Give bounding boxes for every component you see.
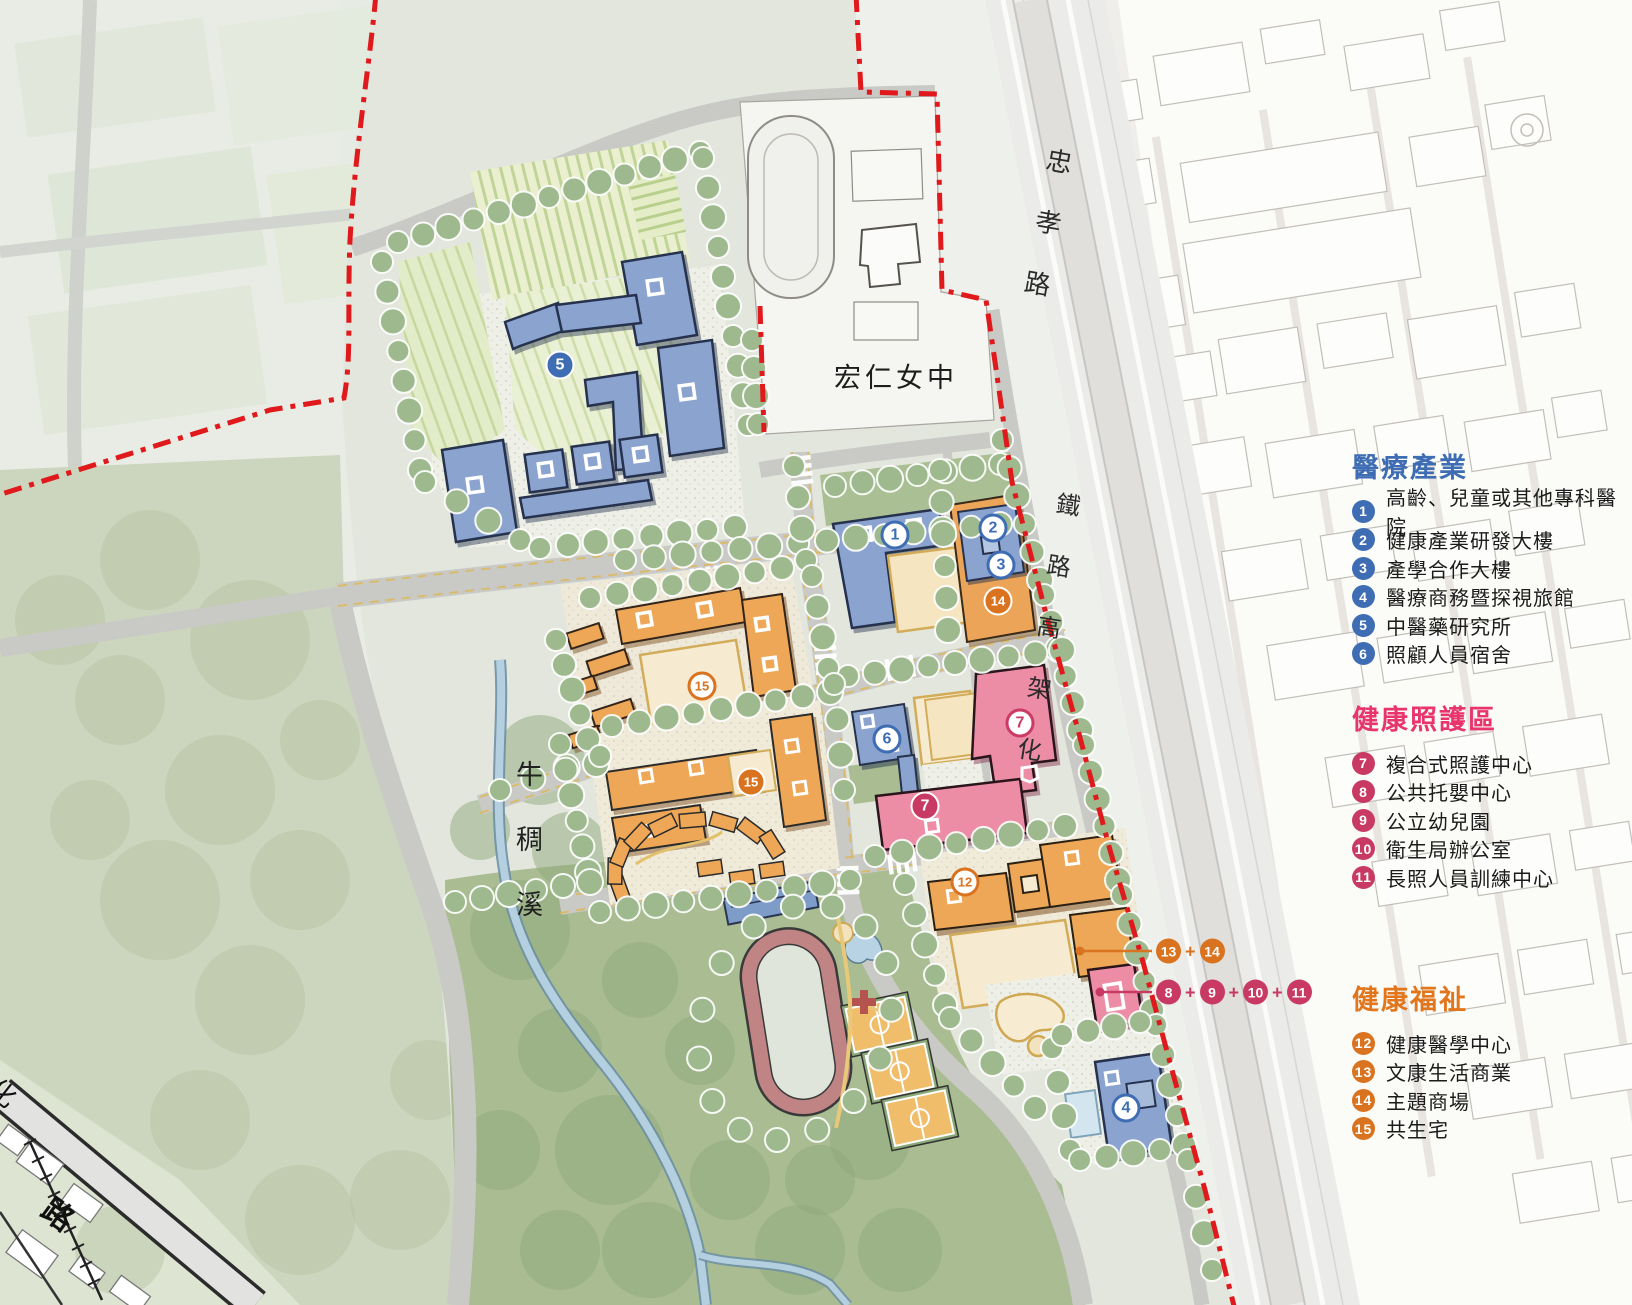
- map-badge-2: 2: [979, 514, 1008, 543]
- map-badge-7: 7: [911, 792, 940, 821]
- legend-health-welfare: 健康福祉 12健康醫學中心13文康生活商業14主題商場15共生宅: [1352, 978, 1512, 1143]
- callout-plus: +: [1229, 983, 1240, 1001]
- stream-label: 牛稠溪: [508, 760, 547, 955]
- legend-item: 6照顧人員宿舍: [1352, 640, 1632, 669]
- callout-plus: +: [1185, 942, 1196, 960]
- school-label: 宏仁女中: [834, 356, 958, 395]
- legend-item-number: 10: [1352, 837, 1375, 860]
- callout-number-14: 14: [1200, 939, 1225, 964]
- legend-item-number: 4: [1352, 585, 1375, 608]
- callout-13-14: 13+14: [1156, 939, 1225, 964]
- legend-medical-list: 1高齡、兒童或其他專科醫院2健康產業研發大樓3產學合作大樓4醫療商務暨探視旅館5…: [1352, 497, 1632, 668]
- legend-item-label: 中醫藥研究所: [1386, 611, 1512, 640]
- legend-item: 8公共托嬰中心: [1352, 778, 1554, 807]
- master-plan-page: 宏仁女中 忠孝路 鐵路高架化 牛稠溪 路 化 醫療產業 1高齡、兒童或其他專科醫…: [0, 0, 1632, 1305]
- legend-item-label: 複合式照護中心: [1386, 749, 1533, 778]
- callout-plus: +: [1185, 983, 1196, 1001]
- callout-plus: +: [1272, 983, 1283, 1001]
- legend-item-number: 11: [1352, 866, 1375, 889]
- legend-item: 3產學合作大樓: [1352, 554, 1632, 583]
- callout-number-8: 8: [1156, 980, 1181, 1005]
- legend-item-number: 12: [1352, 1032, 1375, 1055]
- map-badge-14: 14: [984, 587, 1013, 616]
- legend-item-number: 15: [1352, 1117, 1375, 1140]
- callout-number-11: 11: [1287, 980, 1312, 1005]
- legend-item-label: 文康生活商業: [1386, 1057, 1512, 1086]
- map-badge-3: 3: [987, 551, 1016, 580]
- legend-item: 9公立幼兒園: [1352, 806, 1554, 835]
- legend-medical-industry: 醫療產業 1高齡、兒童或其他專科醫院2健康產業研發大樓3產學合作大樓4醫療商務暨…: [1352, 446, 1632, 668]
- legend-item-label: 衛生局辦公室: [1386, 834, 1512, 863]
- map-badge-15: 15: [737, 768, 766, 797]
- legend-item-number: 8: [1352, 780, 1375, 803]
- legend-medical-title: 醫療產業: [1352, 446, 1632, 485]
- legend-welfare-list: 12健康醫學中心13文康生活商業14主題商場15共生宅: [1352, 1029, 1512, 1143]
- legend-item-number: 6: [1352, 642, 1375, 665]
- callout-number-13: 13: [1156, 939, 1181, 964]
- map-badge-7: 7: [1006, 709, 1035, 738]
- legend-item: 11長照人員訓練中心: [1352, 863, 1554, 892]
- legend-item: 5中醫藥研究所: [1352, 611, 1632, 640]
- legend-item-number: 14: [1352, 1089, 1375, 1112]
- legend-item-number: 9: [1352, 809, 1375, 832]
- legend-health-care: 健康照護區 7複合式照護中心8公共托嬰中心9公立幼兒園10衛生局辦公室11長照人…: [1352, 698, 1554, 892]
- legend-item: 7複合式照護中心: [1352, 749, 1554, 778]
- legend-item-number: 13: [1352, 1060, 1375, 1083]
- callout-number-9: 9: [1200, 980, 1225, 1005]
- legend-care-title: 健康照護區: [1352, 698, 1554, 737]
- legend-welfare-title: 健康福祉: [1352, 978, 1512, 1017]
- legend-item-label: 公立幼兒園: [1386, 806, 1491, 835]
- legend-item-label: 產學合作大樓: [1386, 554, 1512, 583]
- legend-item: 12健康醫學中心: [1352, 1029, 1512, 1058]
- legend-item-label: 公共托嬰中心: [1386, 777, 1512, 806]
- legend-item-label: 主題商場: [1386, 1086, 1470, 1115]
- legend-item-label: 共生宅: [1386, 1114, 1449, 1143]
- map-badge-6: 6: [873, 725, 902, 754]
- callout-8-9-10-11: 8+9+10+11: [1156, 980, 1312, 1005]
- legend-item: 4醫療商務暨探視旅館: [1352, 583, 1632, 612]
- legend-item-number: 5: [1352, 614, 1375, 637]
- map-badge-15: 15: [688, 672, 717, 701]
- legend-item: 14主題商場: [1352, 1086, 1512, 1115]
- legend-item-number: 2: [1352, 528, 1375, 551]
- legend-item-number: 1: [1352, 500, 1375, 523]
- legend-item-label: 醫療商務暨探視旅館: [1386, 582, 1575, 611]
- legend-item: 15共生宅: [1352, 1115, 1512, 1144]
- map-badge-1: 1: [881, 521, 910, 550]
- legend-item-label: 健康醫學中心: [1386, 1029, 1512, 1058]
- legend-item-number: 3: [1352, 557, 1375, 580]
- map-badge-12: 12: [951, 868, 980, 897]
- legend-item-label: 健康產業研發大樓: [1386, 525, 1554, 554]
- legend-item-number: 7: [1352, 752, 1375, 775]
- legend-care-list: 7複合式照護中心8公共托嬰中心9公立幼兒園10衛生局辦公室11長照人員訓練中心: [1352, 749, 1554, 892]
- legend-item-label: 長照人員訓練中心: [1386, 863, 1554, 892]
- map-badge-4: 4: [1112, 1094, 1141, 1123]
- legend-item-label: 照顧人員宿舍: [1386, 639, 1512, 668]
- legend-item: 13文康生活商業: [1352, 1058, 1512, 1087]
- map-badge-5: 5: [546, 351, 575, 380]
- callout-number-10: 10: [1243, 980, 1268, 1005]
- legend-item: 1高齡、兒童或其他專科醫院: [1352, 497, 1632, 526]
- legend-item: 10衛生局辦公室: [1352, 835, 1554, 864]
